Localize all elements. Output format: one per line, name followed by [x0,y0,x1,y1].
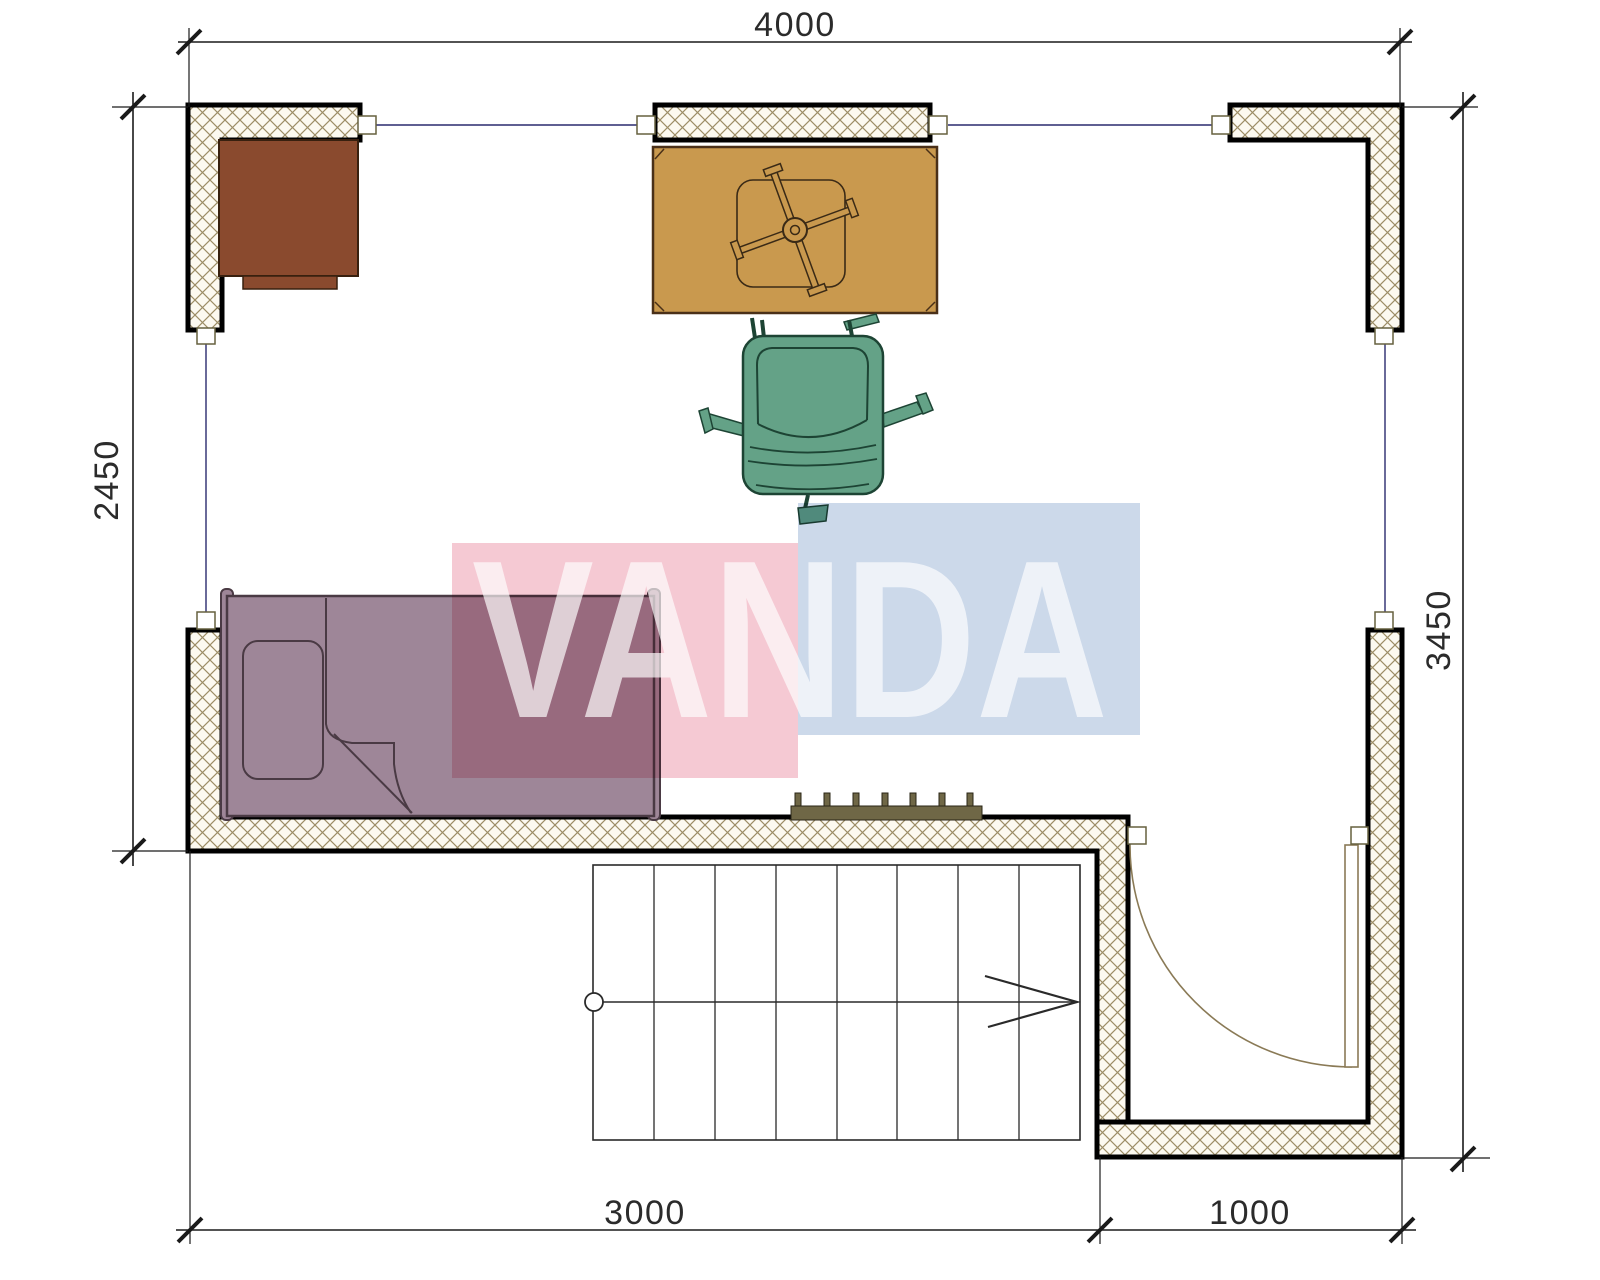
dimension-right-label: 3450 [1420,589,1458,671]
wall-top-right [1230,105,1402,330]
floor-plan-canvas: 4000 2450 3450 3000 1000 VANDA [0,0,1600,1280]
armrest-right [882,402,923,427]
office-chair [699,314,933,524]
connector-square [197,612,215,629]
radiator [791,793,982,820]
connector-square [358,116,376,134]
door-leaf [1345,845,1358,1067]
watermark: VANDA [452,503,1140,778]
connector-square [1375,328,1393,344]
pillow [243,641,323,779]
stair-start-circle [585,993,603,1011]
dimension-top-label: 4000 [754,6,836,44]
table-with-fan [653,147,937,313]
desk [219,140,358,289]
connector-square [1375,612,1393,629]
connector-square [929,116,947,134]
connector-square [1212,116,1230,134]
staircase [585,865,1080,1140]
dimension-bottom-right-label: 1000 [1209,1194,1291,1232]
dimension-left-label: 2450 [88,439,126,521]
swing-door [1128,827,1368,1067]
door-jamb-left [1128,827,1146,844]
watermark-text: VANDA [472,513,1108,765]
connector-square [637,116,655,134]
door-swing-arc [1130,845,1352,1067]
connector-square [197,328,215,344]
chair-body [743,336,883,494]
wall-top-window [655,105,930,140]
floor-plan-page: 4000 2450 3450 3000 1000 VANDA [0,0,1600,1280]
door-jamb-right [1351,827,1368,844]
dimension-bottom-left-label: 3000 [604,1194,686,1232]
